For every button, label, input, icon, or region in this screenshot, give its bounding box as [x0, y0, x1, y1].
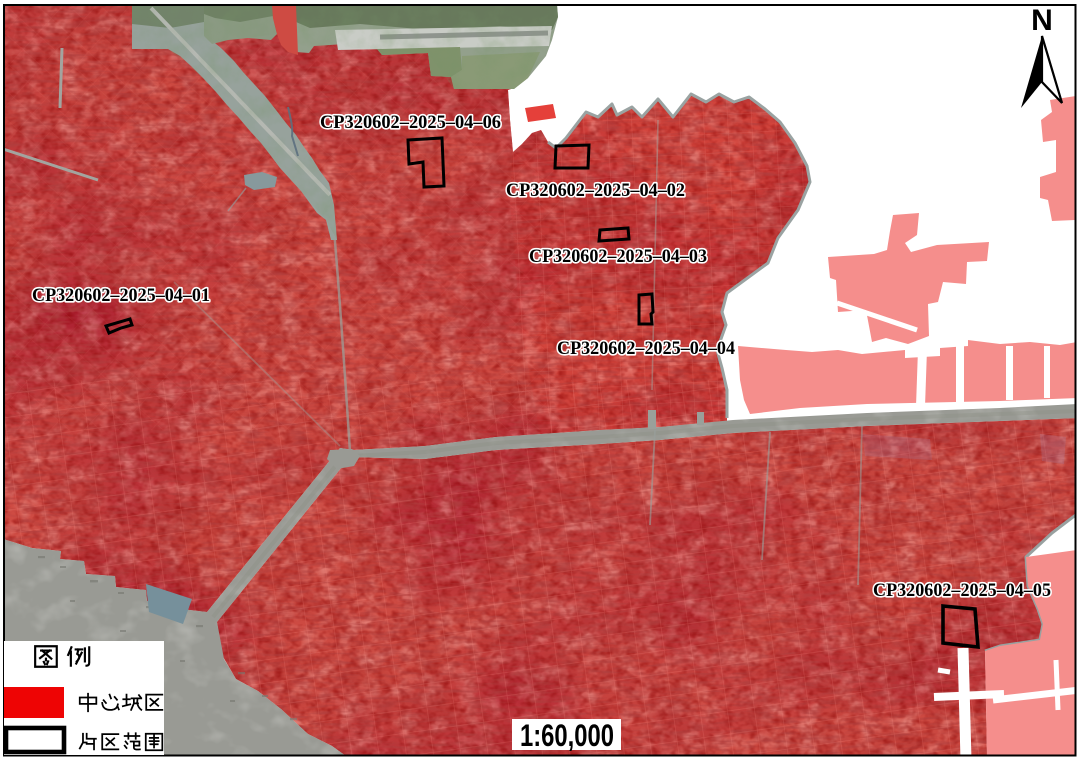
svg-text:CP320602–2025–04–04: CP320602–2025–04–04	[557, 338, 735, 359]
svg-text:CP320602–2025–04–06: CP320602–2025–04–06	[320, 112, 501, 133]
svg-text:CP320602–2025–04–02: CP320602–2025–04–02	[506, 180, 685, 201]
svg-text:CP320602–2025–04–01: CP320602–2025–04–01	[32, 285, 210, 306]
svg-text:1:60,000: 1:60,000	[520, 717, 614, 753]
svg-text:CP320602–2025–04–05: CP320602–2025–04–05	[873, 580, 1051, 601]
svg-text:CP320602–2025–04–03: CP320602–2025–04–03	[529, 246, 707, 267]
svg-text:N: N	[1031, 4, 1053, 37]
